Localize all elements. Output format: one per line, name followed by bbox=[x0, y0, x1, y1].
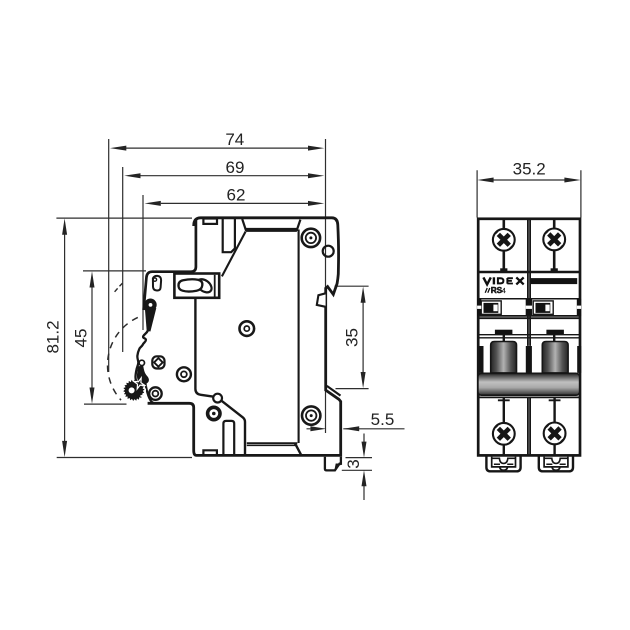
svg-text:5.5: 5.5 bbox=[371, 410, 395, 429]
svg-text:35.2: 35.2 bbox=[513, 160, 546, 179]
svg-text:3: 3 bbox=[344, 459, 363, 468]
svg-text:81.2: 81.2 bbox=[44, 320, 63, 353]
svg-text:62: 62 bbox=[227, 185, 246, 204]
svg-text:45: 45 bbox=[72, 329, 91, 348]
svg-text:74: 74 bbox=[225, 130, 244, 149]
svg-text:69: 69 bbox=[226, 158, 245, 177]
svg-text:4: 4 bbox=[502, 286, 506, 295]
svg-text:35: 35 bbox=[343, 328, 362, 347]
